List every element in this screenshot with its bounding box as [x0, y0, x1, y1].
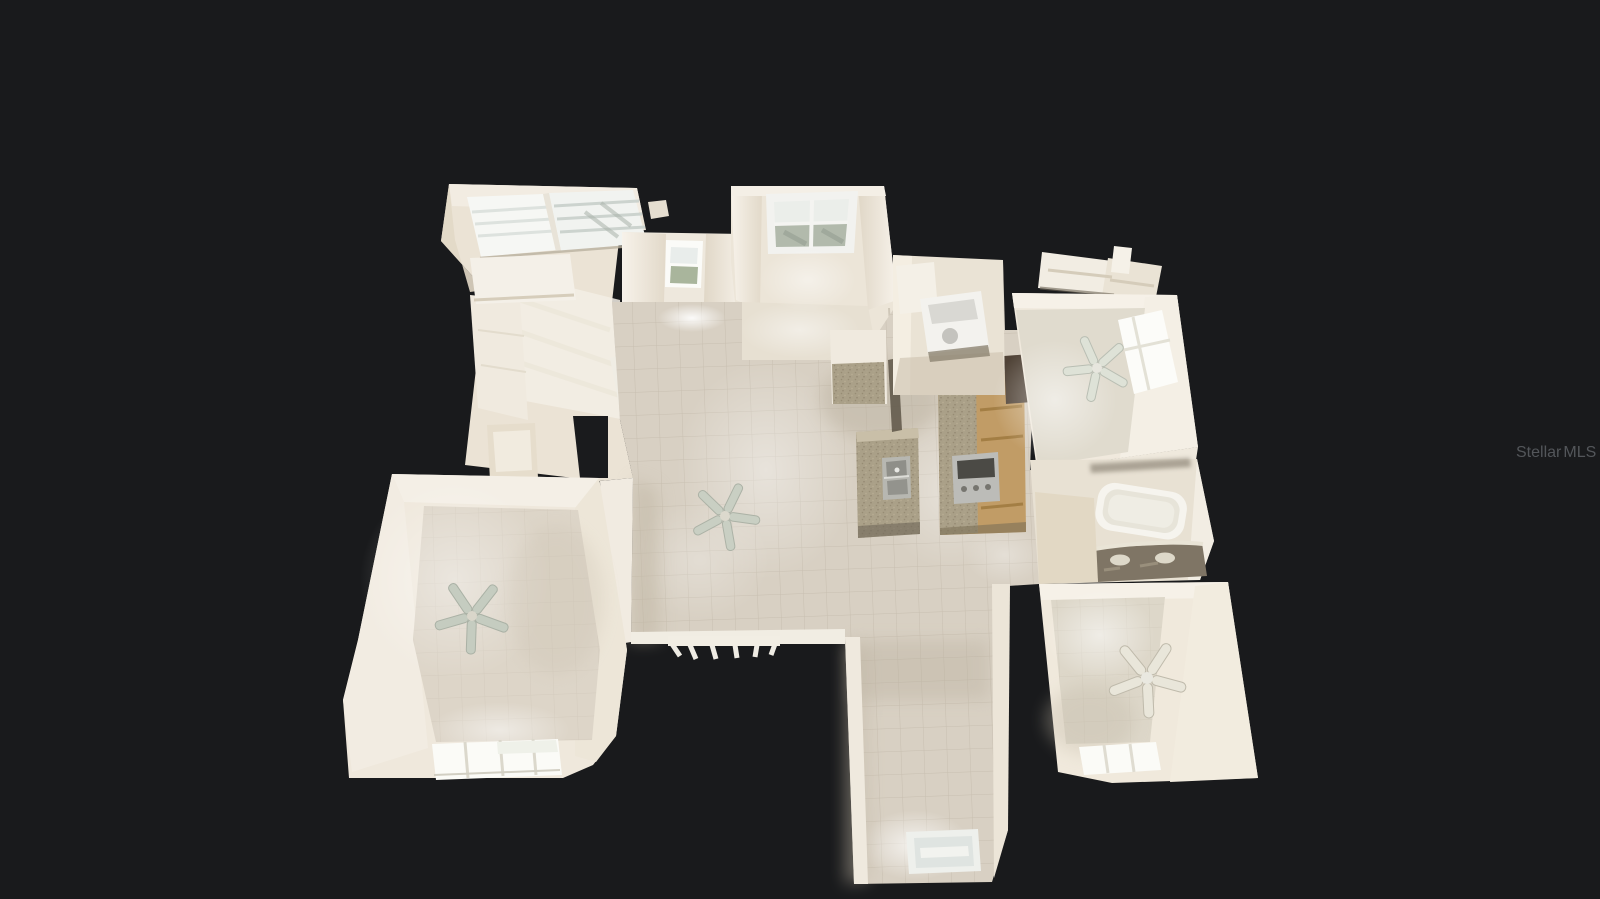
svg-text:StellarMLS: StellarMLS	[1516, 444, 1596, 461]
